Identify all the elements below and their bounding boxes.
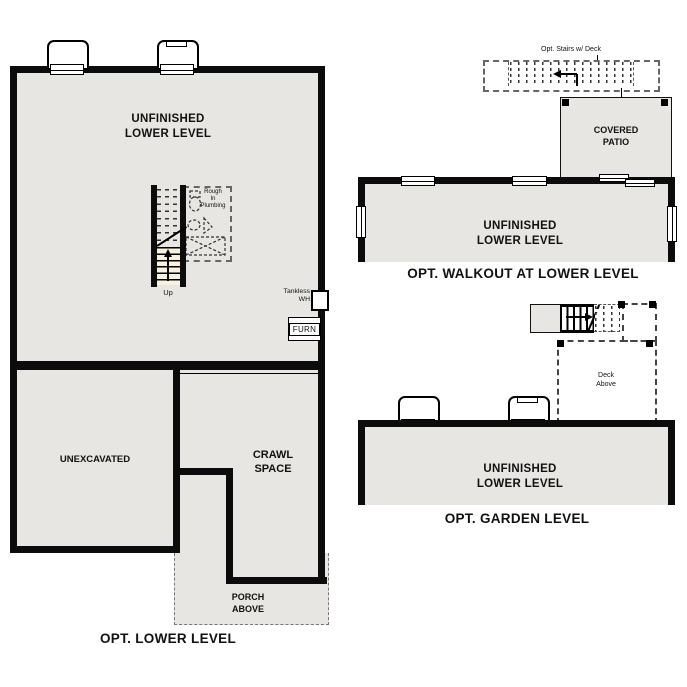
wall-left — [358, 420, 365, 505]
window — [160, 64, 194, 75]
beam-line — [180, 373, 318, 374]
egress-ladder-icon — [166, 42, 187, 47]
leader-line — [621, 88, 622, 97]
stairs-arrow-shaft — [576, 74, 578, 86]
plan-caption-opt-garden-level: OPT. GARDEN LEVEL — [397, 510, 637, 528]
stairs-arrow-head — [553, 70, 561, 78]
stair-landing — [530, 304, 561, 333]
stairs-dashed-edge — [594, 331, 620, 332]
stairs-arrow-shaft — [561, 73, 577, 75]
wall-crawl-bottom — [226, 577, 327, 584]
wall-right — [668, 420, 675, 505]
stairs-arrow-shaft — [566, 316, 586, 318]
window — [667, 206, 677, 242]
stair-stringer-right — [180, 185, 186, 287]
floorplan-sheet: Rough In Plumbing Up Tankless WH FURN — [0, 0, 687, 687]
stairs-divider — [508, 62, 509, 86]
window — [512, 176, 547, 186]
wall-unexcavated-right — [173, 361, 180, 553]
plan-caption-opt-walkout: OPT. WALKOUT AT LOWER LEVEL — [398, 265, 648, 283]
patio-post — [661, 99, 668, 106]
stairs-divider — [633, 62, 634, 86]
deck-above-label: Deck Above — [575, 371, 637, 389]
furnace-label: FURN — [289, 323, 320, 336]
room-label-unexcavated: UNEXCAVATED — [35, 454, 155, 466]
stairs-up-label: Up — [156, 288, 180, 298]
stairs-dashed-edge — [594, 304, 620, 305]
room-label-covered-patio: COVERED PATIO — [576, 125, 656, 148]
wall-crawl-notch-top — [176, 468, 233, 475]
deck-post — [618, 301, 625, 308]
deck-post — [649, 301, 656, 308]
tankless-wh-box — [311, 290, 329, 311]
window — [50, 64, 84, 75]
plan-caption-opt-lower-level: OPT. LOWER LEVEL — [68, 630, 268, 648]
wall-unexcavated-bottom — [10, 546, 180, 553]
stairs-dashed-treads — [595, 306, 620, 332]
tankless-wh-label: Tankless WH — [276, 288, 310, 305]
room-label-porch-above: PORCH ABOVE — [218, 592, 278, 615]
stair-up-arrow-shaft — [167, 256, 169, 281]
deck-landing-outline — [622, 303, 657, 342]
window — [356, 206, 366, 238]
wall-crawl-notch-side — [226, 468, 233, 584]
room-label-crawl-space: CRAWL SPACE — [240, 448, 306, 477]
stair-stringer-left — [151, 185, 157, 287]
egress-ladder-icon — [517, 398, 538, 403]
rough-in-label: Rough In Plumbing — [198, 189, 228, 211]
room-label-unfinished-lower-level: UNFINISHED LOWER LEVEL — [445, 462, 595, 492]
deck-post — [557, 340, 564, 347]
furnace-box: FURN — [288, 317, 321, 341]
opt-stairs-deck-label: Opt. Stairs w/ Deck — [515, 45, 627, 54]
deck-post — [646, 340, 653, 347]
stairs-arrow-head — [585, 313, 593, 321]
sliding-door — [625, 179, 655, 187]
wall-top — [358, 420, 675, 427]
room-label-unfinished-lower-level: UNFINISHED LOWER LEVEL — [93, 112, 243, 142]
wall-divider — [10, 361, 325, 370]
patio-post — [562, 99, 569, 106]
room-label-unfinished-lower-level: UNFINISHED LOWER LEVEL — [445, 219, 595, 249]
wall-left — [10, 66, 17, 553]
window — [401, 176, 435, 186]
stair-up-arrow-head — [164, 249, 172, 257]
